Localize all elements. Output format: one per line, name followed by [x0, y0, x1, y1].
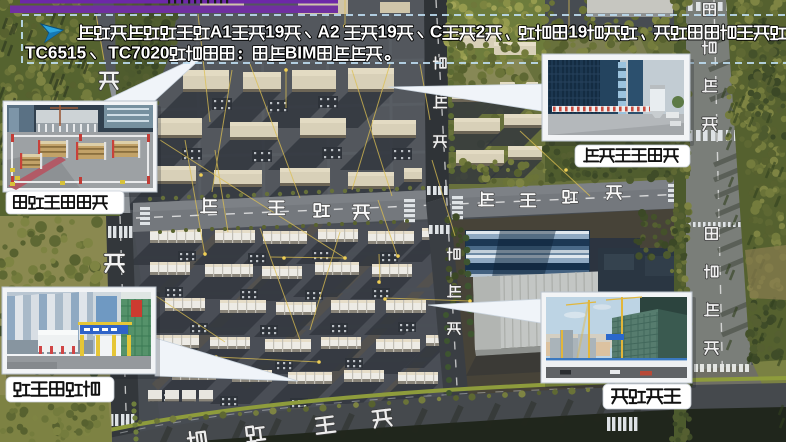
svg-text:BIM: BIM [285, 43, 317, 63]
svg-text:19: 19 [378, 22, 397, 42]
svg-text:19: 19 [568, 22, 587, 42]
svg-text:A1: A1 [210, 22, 232, 42]
svg-text:2: 2 [476, 22, 486, 42]
svg-text:TC6515: TC6515 [25, 43, 87, 63]
svg-text:C: C [430, 22, 442, 42]
svg-text:19: 19 [265, 22, 284, 42]
svg-text:TC7020: TC7020 [108, 43, 169, 63]
svg-text:A2: A2 [318, 22, 340, 42]
